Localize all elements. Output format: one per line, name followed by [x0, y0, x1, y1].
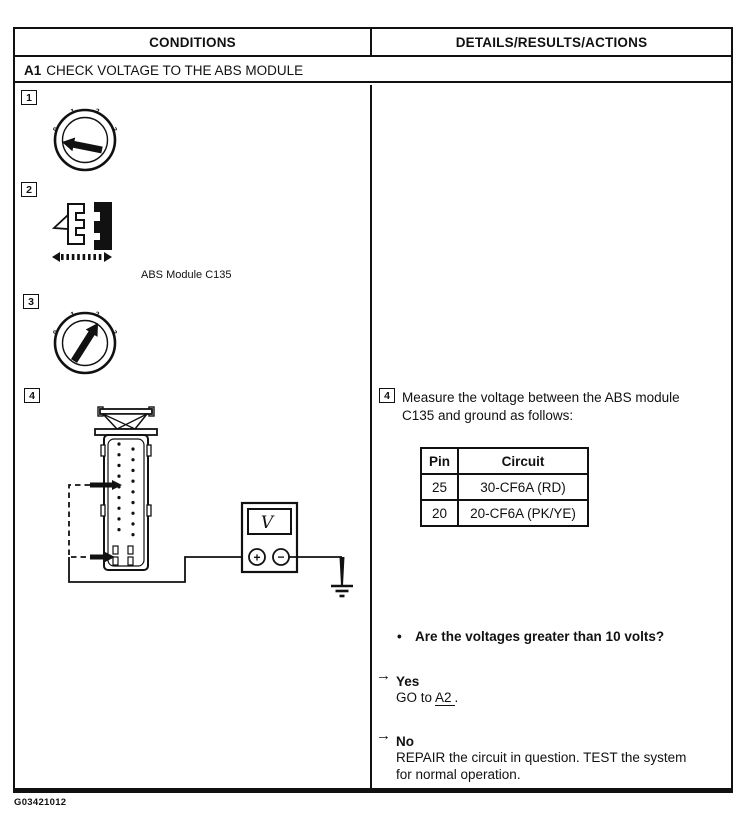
svg-text:−: − — [277, 550, 284, 564]
connector-latch — [101, 445, 105, 456]
detail-step-4-number: 4 — [379, 388, 395, 403]
svg-text:+: + — [253, 551, 260, 565]
table-row: 20 20-CF6A (PK/YE) — [421, 500, 588, 526]
step-1-number: 1 — [21, 90, 37, 105]
measure-instruction: Measure the voltage between the ABS modu… — [402, 389, 707, 424]
circuit-value: 20-CF6A (PK/YE) — [458, 500, 588, 526]
circuit-header: Circuit — [458, 448, 588, 474]
yes-action-prefix: GO to — [396, 690, 435, 705]
bullet-icon: • — [397, 629, 415, 644]
voltmeter-test-diagram: V + − — [45, 399, 357, 607]
details-cell: 4 Measure the voltage between the ABS mo… — [372, 85, 731, 788]
pin-table-header-row: Pin Circuit — [421, 448, 588, 474]
arrow-left — [52, 252, 60, 262]
step-2-number: 2 — [21, 182, 37, 197]
yes-action: GO to A2. — [396, 690, 688, 707]
conditions-column-header: CONDITIONS — [15, 29, 372, 55]
disconnect-connector-icon — [48, 200, 118, 264]
yes-action-suffix: . — [455, 690, 459, 705]
test-lead-wire — [69, 557, 249, 582]
circuit-value: 30-CF6A (RD) — [458, 474, 588, 500]
ignition-switch-run-icon: 0 1 2 3 — [52, 309, 118, 377]
pin-value: 20 — [421, 500, 458, 526]
connector-latch — [147, 445, 151, 456]
question-text: Are the voltages greater than 10 volts? — [415, 629, 664, 644]
test-id: A1 — [24, 63, 41, 78]
pin-circuit-table: Pin Circuit 25 30-CF6A (RD) 20 20-CF6A (… — [420, 447, 589, 527]
connector-latch — [147, 505, 151, 516]
figure-id: G03421012 — [14, 797, 66, 808]
no-action: REPAIR the circuit in question. TEST the… — [396, 750, 688, 783]
test-question: • Are the voltages greater than 10 volts… — [397, 629, 664, 644]
details-column-header: DETAILS/RESULTS/ACTIONS — [372, 29, 731, 55]
pin-value: 25 — [421, 474, 458, 500]
table-body-row: 1 0 1 2 3 2 — [15, 85, 731, 788]
no-answer: No — [396, 734, 414, 749]
ground-probe — [340, 557, 345, 585]
pin-header: Pin — [421, 448, 458, 474]
connector-latch — [101, 505, 105, 516]
diagnostic-table: CONDITIONS DETAILS/RESULTS/ACTIONS A1 CH… — [13, 27, 733, 793]
probe-jumper-dashed — [69, 485, 90, 557]
table-header-row: CONDITIONS DETAILS/RESULTS/ACTIONS — [15, 29, 731, 57]
yes-answer: Yes — [396, 674, 419, 689]
svg-text:V: V — [261, 513, 275, 533]
diagnostic-procedure-page: CONDITIONS DETAILS/RESULTS/ACTIONS A1 CH… — [0, 0, 750, 837]
connector-caption: ABS Module C135 — [141, 269, 232, 281]
result-arrow-icon: → — [376, 729, 391, 743]
goto-a2-link[interactable]: A2 — [435, 690, 455, 706]
ignition-switch-off-icon: 0 1 2 3 — [52, 106, 118, 174]
test-title: CHECK VOLTAGE TO THE ABS MODULE — [46, 63, 303, 78]
conditions-cell: 1 0 1 2 3 2 — [15, 85, 372, 788]
test-title-row: A1 CHECK VOLTAGE TO THE ABS MODULE — [15, 59, 731, 83]
table-row: 25 30-CF6A (RD) — [421, 474, 588, 500]
result-arrow-icon: → — [376, 669, 391, 683]
step-4-number: 4 — [24, 388, 40, 403]
arrow-right — [104, 252, 112, 262]
step-3-number: 3 — [23, 294, 39, 309]
